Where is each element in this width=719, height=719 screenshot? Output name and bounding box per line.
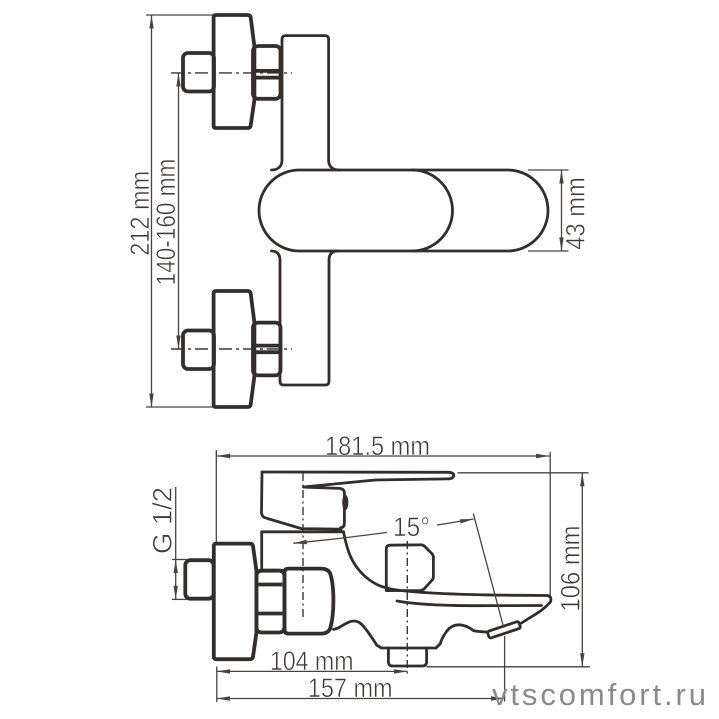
svg-text:181.5 mm: 181.5 mm [325, 431, 430, 461]
svg-text:G 1/2: G 1/2 [148, 487, 178, 554]
svg-text:vtscomfort.ru: vtscomfort.ru [492, 677, 706, 712]
svg-text:104 mm: 104 mm [270, 646, 354, 676]
svg-text:140-160 mm: 140-160 mm [151, 159, 181, 286]
svg-text:157 mm: 157 mm [308, 673, 393, 703]
svg-text:43 mm: 43 mm [561, 177, 591, 250]
svg-text:15°: 15° [393, 512, 430, 542]
svg-text:106 mm: 106 mm [556, 526, 586, 612]
